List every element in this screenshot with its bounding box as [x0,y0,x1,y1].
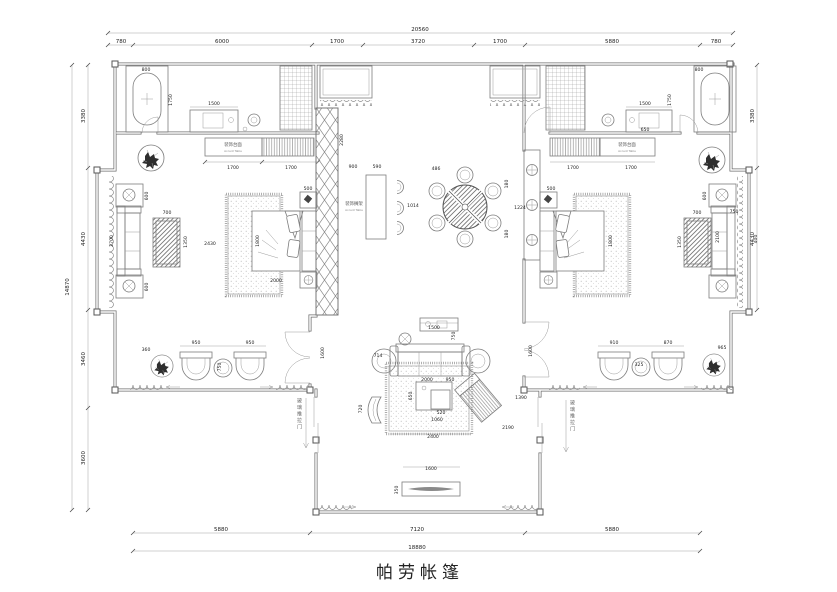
plant-left-bedroom [138,145,164,171]
dim-label: 1060 [431,417,443,423]
dim-label: 910 [610,340,619,346]
dim-label: 600 [144,192,150,201]
plant-right-bedroom [699,147,725,173]
dim-label: 18880 [408,545,426,551]
radiator-cabinet-left [262,138,314,156]
dim-label: 3380 [750,109,756,123]
bathtub-left [126,66,168,132]
dim-label: 520 [437,410,446,416]
dim-label: 4430 [81,232,87,246]
dim-label: 5880 [214,527,228,533]
patio-doors-left [285,332,310,383]
dim-label: 650 [408,392,414,401]
wardrobe-right [546,66,585,130]
dim-label: 2430 [204,241,216,247]
dim-label: 900 [349,164,358,170]
dim-label: 800 [695,67,704,73]
dim-label: 950 [446,377,455,383]
walls [94,61,752,515]
chaise-bench [368,397,381,423]
dim-label: 1014 [407,203,419,209]
dim-label: 1600 [425,466,437,472]
dim-label: 5880 [605,39,619,45]
dresser-right [602,110,672,132]
dim-label: 1800 [608,235,614,247]
dining-set [429,167,501,247]
dim-label: 1600 [320,347,326,359]
dim-label: 2400 [427,434,439,440]
bed-right [540,194,630,296]
nightstand-right-top [540,192,557,208]
dim-label: 650 [641,127,650,133]
dim-label: 486 [432,166,441,172]
dim-label: 1700 [567,165,579,171]
dim-label: 1700 [227,165,239,171]
dim-label: 2190 [502,425,514,431]
curtain-strip [737,176,743,308]
dim-label: 1500 [208,101,220,107]
nightstand-left-top [300,192,317,208]
dim-label: 750 [217,363,223,372]
dim-label: 950 [246,340,255,346]
dim-label: 750 [451,332,457,341]
sliding-door-label-right: 玻璃推拉门 [569,400,574,433]
dim-label: 400 [753,235,759,244]
dim-label: 750 [730,209,739,215]
dim-label: 1700 [285,165,297,171]
dim-label: 5880 [605,527,619,533]
dim-label: 1800 [255,235,261,247]
wall-posts [94,61,752,515]
dim-label: 2000 [270,278,282,284]
dim-label: 1350 [183,236,189,248]
dim-label: 1500 [428,325,440,331]
screen-shelf-label-cn: 装饰搁架 [345,200,363,207]
sliding-door-arrow-left [304,398,309,448]
dim-label: 590 [373,164,382,170]
living-area [368,318,502,434]
dimension-lines [70,31,759,553]
entry-planter-right [490,66,540,106]
dim-label: 950 [192,340,201,346]
bar-counter [366,175,404,239]
dim-label: 325 [635,362,644,368]
accent-table-right: 装饰台面 Accent Table [550,138,655,156]
dim-label: 1700 [625,165,637,171]
floor-lamp [399,333,411,345]
dim-label: 6000 [215,39,229,45]
dim-label: 500 [547,186,556,192]
accent-table-right-label-en: Accent Table [618,149,636,153]
dim-label: 20560 [411,27,429,33]
drawing-title: 帕劳帐篷 [376,563,464,582]
dim-label: 1224 [514,205,526,211]
dim-label: 180 [504,230,510,239]
dim-label: 2280 [339,134,345,146]
dim-label: 780 [711,39,722,45]
accent-table-left-label-en: Accent Table [224,149,242,153]
dim-label: 180 [504,180,510,189]
dim-label: 1750 [168,94,174,106]
sliding-door-arrow-right [564,400,569,452]
coffee-table-right [684,218,711,267]
dim-label: 1700 [330,39,344,45]
curtain-strip [490,100,540,106]
sofa-nook-right [709,176,743,308]
wardrobe-left [280,66,312,130]
dim-label: 1390 [515,395,527,401]
dim-label: 700 [693,210,702,216]
radiator-cabinet-right [550,138,600,156]
nightstand-left-bottom [300,272,317,288]
curtain-strip [320,100,372,106]
coffee-table-left [153,218,180,267]
dim-label: 780 [116,39,127,45]
floor-plan-drawing: 20560 780 6000 1700 3720 1700 5880 780 5… [0,0,837,592]
dim-label: 600 [144,283,150,292]
dim-label: 800 [142,67,151,73]
dim-label: 1500 [639,101,651,107]
dim-label: 3380 [81,109,87,123]
accent-table-right-label-cn: 装饰台面 [618,141,636,148]
dim-label: 870 [664,340,673,346]
patio-doors-right [524,322,549,377]
screen-shelf-label-en: Accent Table [345,208,363,212]
dim-label: 1700 [493,39,507,45]
dresser-left [190,110,260,132]
dim-label: 965 [718,345,727,351]
dim-label: 7120 [410,527,424,533]
dim-label: 720 [358,405,364,414]
dim-label: 714 [374,353,383,359]
nightstand-right-bottom [540,272,557,288]
plant-patio-left [151,355,173,377]
dim-label: 2000 [421,377,433,383]
floor-plan-canvas: 20560 780 6000 1700 3720 1700 5880 780 5… [0,0,837,592]
dim-label: 2100 [715,231,721,243]
dim-label: 500 [304,186,313,192]
decor-shelf-right [524,150,540,260]
bath-door-right [680,115,698,133]
dim-label: 3600 [81,451,87,465]
entry-planter-left [320,66,372,106]
dim-label: 350 [394,486,400,495]
accent-table-left: 装饰台面 Accent Table [205,138,314,156]
plant-patio-right [703,354,725,376]
dim-label: 600 [702,192,708,201]
dim-label: 700 [163,210,172,216]
dim-label: 1600 [528,345,534,357]
dim-label: 14870 [65,278,71,296]
coffee-table-living [416,382,452,410]
dim-label: 3460 [81,352,87,366]
dim-label: 2700 [109,235,115,247]
dim-label: 360 [142,347,151,353]
dim-label: 1350 [677,236,683,248]
patio-right [549,352,732,390]
accent-table-left-label-cn: 装饰台面 [224,141,242,148]
dim-label: 3720 [411,39,425,45]
dim-label: 1750 [667,94,673,106]
sliding-door-label-left: 玻璃推拉门 [296,398,301,431]
